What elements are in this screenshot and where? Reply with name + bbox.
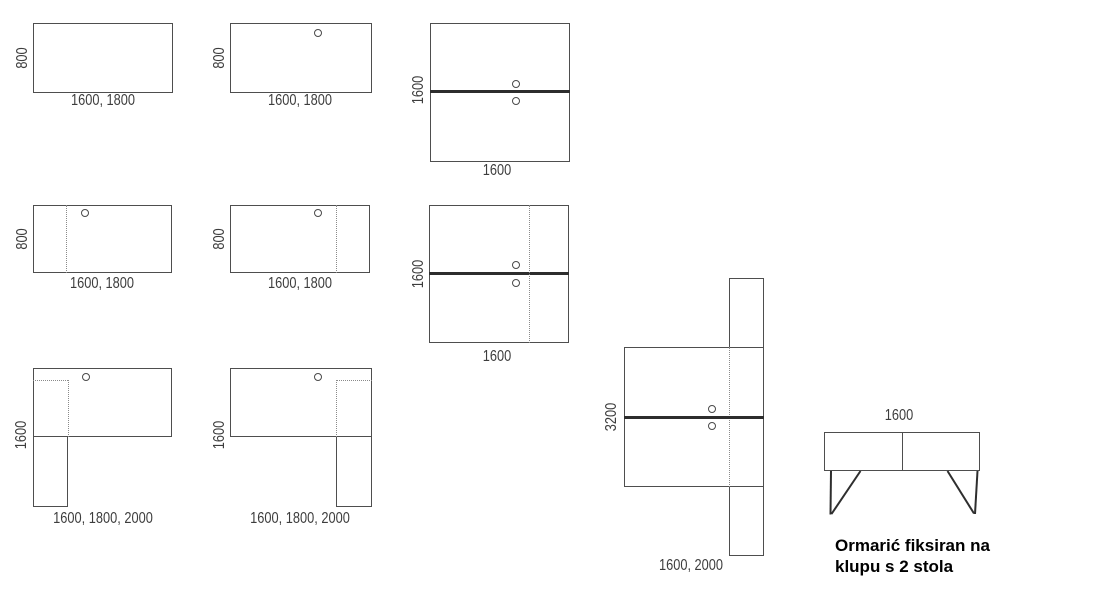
dim-label-widths: 1600, 1800 bbox=[70, 275, 134, 293]
divider-dotted-line bbox=[336, 380, 372, 381]
dim-label-widths: 1600, 1800 bbox=[71, 92, 135, 110]
dim-label-depth: 1600 bbox=[13, 421, 31, 449]
divider-dotted-line bbox=[68, 380, 69, 437]
bench-legs bbox=[815, 465, 990, 520]
dim-label-widths: 1600, 1800, 2000 bbox=[250, 510, 350, 528]
divider-dotted-line bbox=[336, 205, 337, 273]
cabinet-caption-line1: Ormarić fiksiran na bbox=[835, 535, 990, 556]
desk-top-outline bbox=[33, 368, 172, 437]
desk-top-outline bbox=[33, 205, 172, 273]
furniture-layout-sheet: 800 1600, 1800 800 1600, 1800 1600 1600 … bbox=[0, 0, 1116, 596]
cabinet-caption-line2: klupu s 2 stola bbox=[835, 556, 990, 577]
dim-label-width: 1600 bbox=[885, 407, 913, 425]
divider-dotted-line bbox=[529, 205, 530, 343]
return-outline bbox=[336, 436, 372, 507]
divider-dotted-line bbox=[66, 205, 67, 273]
return-outline-bottom bbox=[729, 486, 764, 556]
dim-label-widths: 1600, 2000 bbox=[659, 557, 723, 575]
dim-label-depth: 3200 bbox=[603, 403, 621, 431]
grommet-circle bbox=[708, 405, 716, 413]
grommet-circle bbox=[81, 209, 89, 217]
desk-top-outline bbox=[230, 368, 372, 437]
grommet-circle bbox=[314, 373, 322, 381]
grommet-circle bbox=[82, 373, 90, 381]
grommet-circle bbox=[512, 261, 520, 269]
return-outline-top bbox=[729, 278, 764, 348]
dim-label-depth: 1600 bbox=[211, 421, 229, 449]
desk-top-outline bbox=[230, 205, 370, 273]
cabinet-caption: Ormarić fiksiran na klupu s 2 stola bbox=[835, 535, 990, 577]
grommet-circle bbox=[708, 422, 716, 430]
grommet-circle bbox=[314, 209, 322, 217]
desk-top-outline bbox=[230, 23, 372, 93]
grommet-circle bbox=[512, 279, 520, 287]
dim-label-depth: 800 bbox=[14, 47, 32, 68]
return-outline bbox=[33, 436, 68, 507]
dim-label-widths: 1600, 1800 bbox=[268, 275, 332, 293]
dim-label-depth: 1600 bbox=[410, 76, 428, 104]
grommet-circle bbox=[512, 80, 520, 88]
divider-dotted-line bbox=[33, 380, 68, 381]
dim-label-widths: 1600, 1800 bbox=[268, 92, 332, 110]
dim-label-depth: 800 bbox=[211, 228, 229, 249]
dim-label-depth: 800 bbox=[211, 47, 229, 68]
dim-label-widths: 1600 bbox=[483, 162, 511, 180]
seam-line bbox=[429, 272, 569, 275]
divider-dotted-line bbox=[336, 380, 337, 437]
grommet-circle bbox=[512, 97, 520, 105]
seam-line bbox=[430, 90, 570, 93]
grommet-circle bbox=[314, 29, 322, 37]
dim-label-depth: 1600 bbox=[410, 260, 428, 288]
dim-label-depth: 800 bbox=[14, 228, 32, 249]
dim-label-widths: 1600 bbox=[483, 348, 511, 366]
desk-top-outline bbox=[33, 23, 173, 93]
bench-outline bbox=[430, 23, 570, 162]
dim-label-widths: 1600, 1800, 2000 bbox=[53, 510, 153, 528]
seam-line bbox=[624, 416, 764, 419]
